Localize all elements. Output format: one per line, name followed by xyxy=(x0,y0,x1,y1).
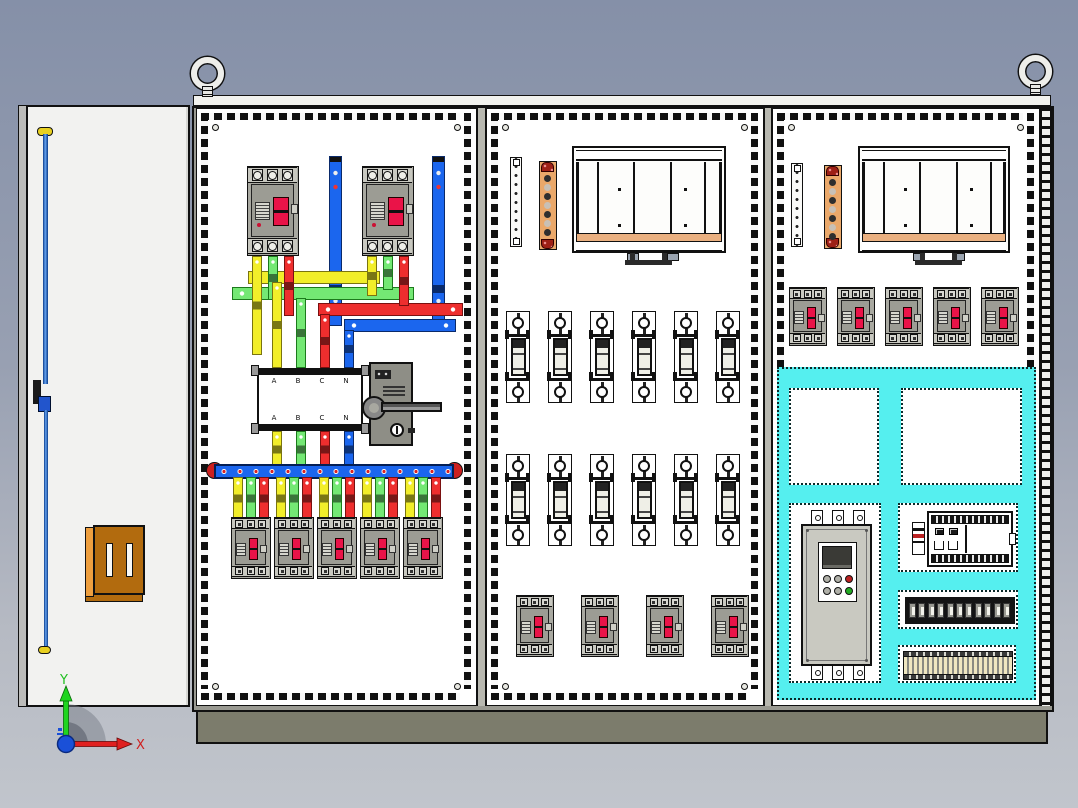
panel-gap xyxy=(764,108,772,706)
panel-perforated-frame xyxy=(491,693,747,700)
relay-module[interactable] xyxy=(1003,603,1010,618)
x-axis-arrow xyxy=(74,742,118,747)
frame-cap xyxy=(251,365,259,376)
din-accessory-module xyxy=(912,522,925,555)
relay-din-rail xyxy=(905,597,1015,624)
axis-triad: Y X xyxy=(24,674,154,774)
panel-corner-screw xyxy=(741,124,748,131)
relay-module[interactable] xyxy=(947,603,954,618)
starter-keypad[interactable] xyxy=(818,542,857,602)
switch-rating-text xyxy=(383,386,405,396)
copper-bar-hole xyxy=(829,224,836,231)
frame-cap xyxy=(361,365,369,376)
screw xyxy=(806,529,809,532)
pocket-slot xyxy=(106,543,113,577)
relay-module[interactable] xyxy=(965,603,972,618)
y-axis-label: Y xyxy=(59,674,68,688)
eye-bolt-stem xyxy=(1030,84,1041,95)
copper-bar-hole xyxy=(829,233,836,240)
z-axis-mark xyxy=(57,733,63,735)
switch-brand-mark xyxy=(375,370,391,379)
plc-terminal-row xyxy=(931,554,1009,563)
mounting-panel-bay2[interactable] xyxy=(486,108,764,706)
starter-tab xyxy=(832,510,844,525)
origin-sphere xyxy=(58,736,75,753)
copper-bar-hole xyxy=(829,215,836,222)
door-interlock-rod-upper[interactable] xyxy=(43,134,48,384)
pocket-slot xyxy=(126,543,133,577)
panel-corner-screw xyxy=(454,683,461,690)
copper-bar-cap xyxy=(541,162,554,172)
starter-display xyxy=(822,546,852,569)
panel-perforated-frame xyxy=(491,113,747,120)
relay-module[interactable] xyxy=(994,603,1001,618)
panel-gap xyxy=(477,108,486,706)
panel-corner-screw xyxy=(502,124,509,131)
copper-bar-hole xyxy=(544,229,551,236)
relay-module[interactable] xyxy=(918,603,925,618)
switch-n-mark xyxy=(408,428,415,433)
copper-bar-hole xyxy=(544,220,551,227)
copper-bar-hole xyxy=(544,211,551,218)
copper-bar-hole xyxy=(544,202,551,209)
terminal-block-strip[interactable] xyxy=(903,651,1013,680)
phase-label-n: N xyxy=(341,377,351,385)
cabinet-frame-rail xyxy=(1040,108,1052,706)
starter-tab xyxy=(832,665,844,680)
copper-bar-hole xyxy=(544,175,551,182)
cad-viewport[interactable]: A B C N A B C N xyxy=(0,0,1078,808)
door-rod-bottom-guide xyxy=(38,646,51,654)
panel-corner-screw xyxy=(212,683,219,690)
plc-port-icon xyxy=(935,528,944,535)
copper-bar-hole xyxy=(544,184,551,191)
relay-module[interactable] xyxy=(975,603,982,618)
switch-position-indicator xyxy=(390,423,404,437)
soft-starter-plate[interactable] xyxy=(789,503,881,683)
relay-module[interactable] xyxy=(937,603,944,618)
plc-divider xyxy=(965,525,967,553)
panel-corner-screw xyxy=(502,683,509,690)
frame-rail xyxy=(259,424,361,429)
panel-corner-screw xyxy=(788,124,795,131)
relay-module[interactable] xyxy=(984,603,991,618)
copper-bar-hole xyxy=(829,206,836,213)
soft-starter[interactable] xyxy=(801,524,872,666)
panel-corner-screw xyxy=(741,683,748,690)
x-axis-arrowhead xyxy=(117,738,132,750)
x-axis-label: X xyxy=(136,738,145,753)
copper-bar-cap xyxy=(541,239,554,249)
y-axis-arrowhead xyxy=(60,686,72,701)
selected-fuse-group[interactable] xyxy=(789,388,879,485)
panel-perforated-frame xyxy=(201,113,208,689)
starter-tab xyxy=(853,510,865,525)
switch-handle[interactable] xyxy=(381,402,442,412)
phase-label-c: C xyxy=(317,377,327,385)
starter-stop-button[interactable] xyxy=(845,575,853,583)
starter-button[interactable] xyxy=(823,587,831,595)
starter-button[interactable] xyxy=(823,575,831,583)
phase-label-b: B xyxy=(293,377,303,385)
frame-cap xyxy=(361,423,369,434)
terminal-blocks xyxy=(903,657,1013,674)
selected-power-units[interactable] xyxy=(901,388,1022,485)
copper-earth-bar[interactable] xyxy=(539,161,557,250)
terminal-strip[interactable] xyxy=(510,157,522,247)
copper-bar-hole xyxy=(829,179,836,186)
panel-corner-screw xyxy=(212,124,219,131)
terminal-strip[interactable] xyxy=(791,163,803,247)
phase-label-a: A xyxy=(269,414,279,422)
starter-button[interactable] xyxy=(834,587,842,595)
panel-perforated-frame xyxy=(751,113,758,689)
relay-module[interactable] xyxy=(956,603,963,618)
screw xyxy=(806,659,809,662)
relay-module[interactable] xyxy=(928,603,935,618)
starter-tab xyxy=(853,665,865,680)
plc-terminal-row xyxy=(931,515,1009,524)
terminal-rail xyxy=(903,674,1013,680)
plc-connector-slot xyxy=(934,541,944,550)
plc-side-tab xyxy=(1009,533,1016,545)
screw xyxy=(865,529,868,532)
cabinet-top-rail xyxy=(193,95,1051,106)
copper-bar-hole xyxy=(829,197,836,204)
door-interlock-rod-lower[interactable] xyxy=(44,410,48,646)
panel-perforated-frame xyxy=(777,113,1023,120)
panel-perforated-frame xyxy=(201,693,460,700)
phase-label-n: N xyxy=(341,414,351,422)
copper-bar-hole xyxy=(544,193,551,200)
phase-label-a: A xyxy=(269,377,279,385)
screw xyxy=(865,659,868,662)
cabinet-plinth xyxy=(196,710,1048,744)
starter-tab xyxy=(811,665,823,680)
copper-bar-hole xyxy=(829,188,836,195)
panel-perforated-frame xyxy=(201,113,460,120)
relay-module[interactable] xyxy=(909,603,916,618)
frame-cap xyxy=(251,423,259,434)
frame-rail xyxy=(259,370,361,375)
phase-label-c: C xyxy=(317,414,327,422)
busbar-support-frame[interactable]: A B C N A B C N xyxy=(257,368,363,431)
copper-earth-bar[interactable] xyxy=(824,165,842,249)
terminal-block-plate[interactable] xyxy=(898,645,1016,683)
disconnect-switch[interactable] xyxy=(369,362,413,446)
copper-bar-cap xyxy=(826,166,839,176)
starter-tab xyxy=(811,510,823,525)
panel-perforated-frame xyxy=(491,113,498,689)
starter-start-button[interactable] xyxy=(845,587,853,595)
starter-button[interactable] xyxy=(834,575,842,583)
phase-label-b: B xyxy=(293,414,303,422)
panel-corner-screw xyxy=(1017,124,1024,131)
plc-plate[interactable] xyxy=(898,503,1018,572)
plc-port-icon xyxy=(949,528,958,535)
plc-controller[interactable] xyxy=(927,511,1013,567)
panel-perforated-frame xyxy=(464,113,471,689)
eye-bolt-stem xyxy=(202,86,213,97)
door-document-pocket[interactable] xyxy=(93,525,145,595)
z-axis-mark xyxy=(58,728,62,731)
panel-corner-screw xyxy=(454,124,461,131)
plc-connector-slot xyxy=(948,541,958,550)
relay-row-plate[interactable] xyxy=(898,590,1018,629)
